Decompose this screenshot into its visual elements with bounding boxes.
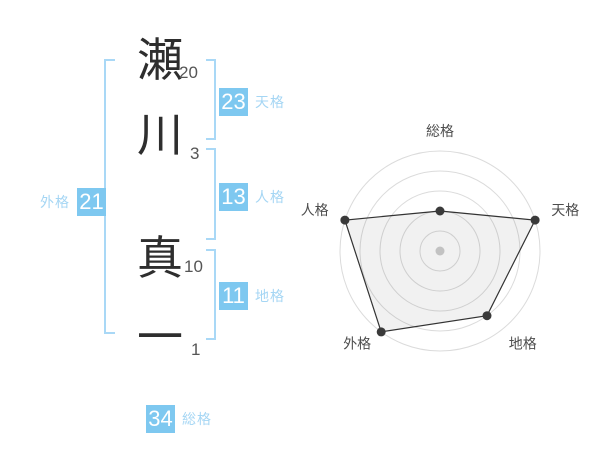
stroke-count-4: 1 <box>191 340 200 360</box>
radar-axis-label: 天格 <box>551 202 579 218</box>
soukaku-label: 総格 <box>182 409 212 429</box>
name-character-3: 真 <box>134 233 186 283</box>
gaikaku-label: 外格 <box>40 192 70 212</box>
soukaku-score-group: 34 総格 <box>146 405 212 433</box>
soukaku-score-badge: 34 <box>146 405 175 433</box>
stroke-count-2: 3 <box>190 144 199 164</box>
name-character-2: 川 <box>134 110 186 160</box>
radar-axis-label: 外格 <box>343 336 371 352</box>
radar-data-point <box>531 216 540 225</box>
tenkaku-label: 天格 <box>255 92 285 112</box>
chikaku-label: 地格 <box>255 286 285 306</box>
gaikaku-score-badge: 21 <box>77 188 106 216</box>
radar-center-dot <box>436 247 445 256</box>
radar-data-point <box>340 216 349 225</box>
tenkaku-bracket <box>206 59 216 140</box>
radar-data-point <box>436 207 445 216</box>
chikaku-score-badge: 11 <box>219 282 248 310</box>
radar-chart: 総格天格地格外格人格 <box>295 115 595 365</box>
jinkaku-bracket <box>206 148 216 240</box>
jinkaku-score-group: 13 人格 <box>219 183 285 211</box>
stroke-count-1: 20 <box>179 63 198 83</box>
stroke-count-3: 10 <box>184 257 203 277</box>
jinkaku-label: 人格 <box>255 187 285 207</box>
chikaku-score-group: 11 地格 <box>219 282 285 310</box>
radar-data-polygon <box>345 211 535 332</box>
radar-axis-label: 地格 <box>509 336 537 352</box>
radar-data-point <box>377 327 386 336</box>
tenkaku-score-group: 23 天格 <box>219 88 285 116</box>
radar-chart-svg: 総格天格地格外格人格 <box>295 115 595 365</box>
radar-data-point <box>483 311 492 320</box>
radar-axis-label: 人格 <box>301 202 329 218</box>
tenkaku-score-badge: 23 <box>219 88 248 116</box>
chikaku-bracket <box>206 249 216 340</box>
name-character-4: 一 <box>134 312 186 362</box>
jinkaku-score-badge: 13 <box>219 183 248 211</box>
gaikaku-score-group: 外格 21 <box>40 188 106 216</box>
seimei-handan-panel: 瀬 川 真 一 20 3 10 1 外格 21 23 天格 13 人格 11 地… <box>0 0 600 470</box>
radar-axis-label: 総格 <box>426 123 454 139</box>
